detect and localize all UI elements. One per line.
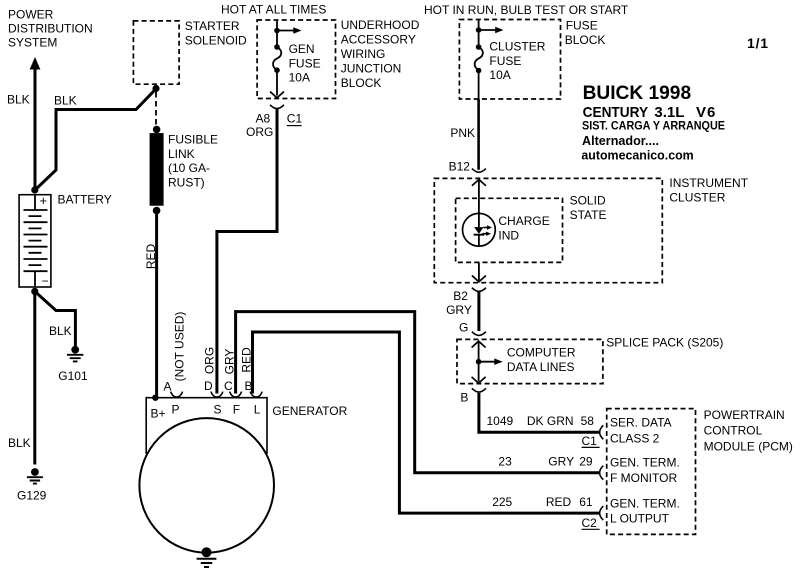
- svg-text:HOT AT ALL TIMES: HOT AT ALL TIMES: [221, 2, 326, 16]
- svg-text:FUSE: FUSE: [566, 18, 598, 32]
- svg-text:BLK: BLK: [8, 436, 31, 450]
- svg-text:225: 225: [492, 495, 512, 509]
- svg-text:BLOCK: BLOCK: [341, 76, 382, 90]
- svg-text:B+: B+: [151, 406, 166, 420]
- svg-text:UNDERHOOD: UNDERHOOD: [341, 18, 420, 32]
- svg-text:29: 29: [579, 455, 593, 469]
- svg-text:DATA LINES: DATA LINES: [507, 360, 575, 374]
- svg-text:(NOT USED): (NOT USED): [172, 312, 186, 382]
- svg-text:SYSTEM: SYSTEM: [8, 36, 57, 50]
- svg-text:61: 61: [579, 495, 593, 509]
- svg-text:B: B: [460, 390, 468, 404]
- svg-text:FUSIBLE: FUSIBLE: [168, 133, 218, 147]
- svg-text:Alternador....: Alternador....: [582, 133, 659, 148]
- svg-text:L OUTPUT: L OUTPUT: [610, 511, 670, 525]
- svg-text:FUSE: FUSE: [489, 54, 521, 68]
- svg-text:FUSE: FUSE: [289, 56, 321, 70]
- svg-text:BLK: BLK: [7, 93, 30, 107]
- svg-text:SER. DATA: SER. DATA: [610, 416, 672, 430]
- svg-text:C1: C1: [287, 112, 303, 126]
- svg-text:GEN. TERM.: GEN. TERM.: [610, 456, 680, 470]
- svg-text:P: P: [172, 402, 180, 416]
- svg-text:(10 GA-: (10 GA-: [168, 161, 210, 175]
- svg-text:23: 23: [498, 455, 512, 469]
- svg-text:IND: IND: [498, 229, 519, 243]
- svg-text:PNK: PNK: [450, 126, 475, 140]
- svg-text:RED: RED: [546, 495, 572, 509]
- svg-text:B2: B2: [453, 289, 468, 303]
- svg-text:1049: 1049: [487, 414, 514, 428]
- svg-text:DK GRN: DK GRN: [527, 414, 574, 428]
- svg-text:C: C: [224, 379, 233, 393]
- svg-text:BLK: BLK: [49, 324, 72, 338]
- svg-text:CONTROL: CONTROL: [704, 424, 763, 438]
- svg-text:L: L: [254, 403, 261, 417]
- svg-text:BLK: BLK: [54, 94, 77, 108]
- svg-text:A8: A8: [256, 112, 271, 126]
- svg-text:GRY: GRY: [222, 349, 236, 375]
- svg-text:ORG: ORG: [202, 347, 216, 374]
- svg-text:GEN. TERM.: GEN. TERM.: [610, 496, 680, 510]
- svg-text:CLUSTER: CLUSTER: [489, 40, 545, 54]
- svg-text:CHARGE: CHARGE: [498, 214, 549, 228]
- svg-text:A: A: [164, 380, 172, 394]
- svg-text:POWER: POWER: [8, 8, 54, 22]
- svg-text:SPLICE PACK (S205): SPLICE PACK (S205): [606, 336, 723, 350]
- svg-text:SIST. CARGA Y ARRANQUE: SIST. CARGA Y ARRANQUE: [582, 118, 725, 132]
- svg-text:MODULE (PCM): MODULE (PCM): [704, 439, 793, 453]
- svg-text:−: −: [42, 274, 49, 288]
- svg-text:STARTER: STARTER: [185, 19, 240, 33]
- svg-text:B12: B12: [449, 159, 471, 173]
- svg-text:automecanico.com: automecanico.com: [581, 148, 693, 163]
- svg-text:POWERTRAIN: POWERTRAIN: [704, 408, 785, 422]
- svg-text:RED: RED: [144, 244, 158, 270]
- svg-text:+: +: [40, 193, 48, 208]
- svg-text:G: G: [459, 320, 468, 334]
- svg-text:D: D: [204, 379, 213, 393]
- svg-text:RED: RED: [239, 347, 253, 373]
- svg-text:S: S: [214, 403, 222, 417]
- svg-text:BUICK 1998: BUICK 1998: [583, 82, 692, 104]
- svg-text:SOLID: SOLID: [570, 194, 606, 208]
- svg-text:SOLENOID: SOLENOID: [185, 33, 247, 47]
- svg-text:GRY: GRY: [548, 455, 574, 469]
- svg-text:DISTRIBUTION: DISTRIBUTION: [8, 22, 93, 36]
- svg-text:10A: 10A: [289, 71, 310, 85]
- svg-text:RUST): RUST): [168, 175, 205, 189]
- svg-text:LINK: LINK: [168, 147, 195, 161]
- svg-text:GENERATOR: GENERATOR: [272, 404, 347, 418]
- svg-text:CLUSTER: CLUSTER: [669, 191, 725, 205]
- svg-text:B: B: [245, 379, 253, 393]
- svg-text:G129: G129: [17, 488, 47, 502]
- svg-text:1/1: 1/1: [747, 35, 769, 51]
- svg-text:BLOCK: BLOCK: [565, 33, 606, 47]
- svg-text:COMPUTER: COMPUTER: [507, 346, 576, 360]
- svg-text:58: 58: [581, 414, 595, 428]
- svg-text:STATE: STATE: [570, 208, 607, 222]
- svg-text:JUNCTION: JUNCTION: [341, 61, 402, 75]
- svg-text:CLASS 2: CLASS 2: [610, 431, 660, 445]
- svg-text:ACCESSORY: ACCESSORY: [341, 32, 416, 46]
- svg-text:HOT IN RUN, BULB TEST OR START: HOT IN RUN, BULB TEST OR START: [424, 3, 629, 17]
- svg-text:C1: C1: [582, 434, 598, 448]
- svg-text:G101: G101: [58, 369, 88, 383]
- svg-text:BATTERY: BATTERY: [58, 193, 112, 207]
- svg-text:10A: 10A: [489, 68, 510, 82]
- svg-text:F MONITOR: F MONITOR: [610, 471, 677, 485]
- svg-text:C2: C2: [582, 516, 598, 530]
- svg-text:WIRING: WIRING: [341, 47, 386, 61]
- svg-text:F: F: [233, 402, 240, 416]
- svg-text:GRY: GRY: [446, 303, 472, 317]
- svg-text:ORG: ORG: [246, 125, 273, 139]
- svg-text:INSTRUMENT: INSTRUMENT: [669, 176, 748, 190]
- svg-text:GEN: GEN: [289, 42, 315, 56]
